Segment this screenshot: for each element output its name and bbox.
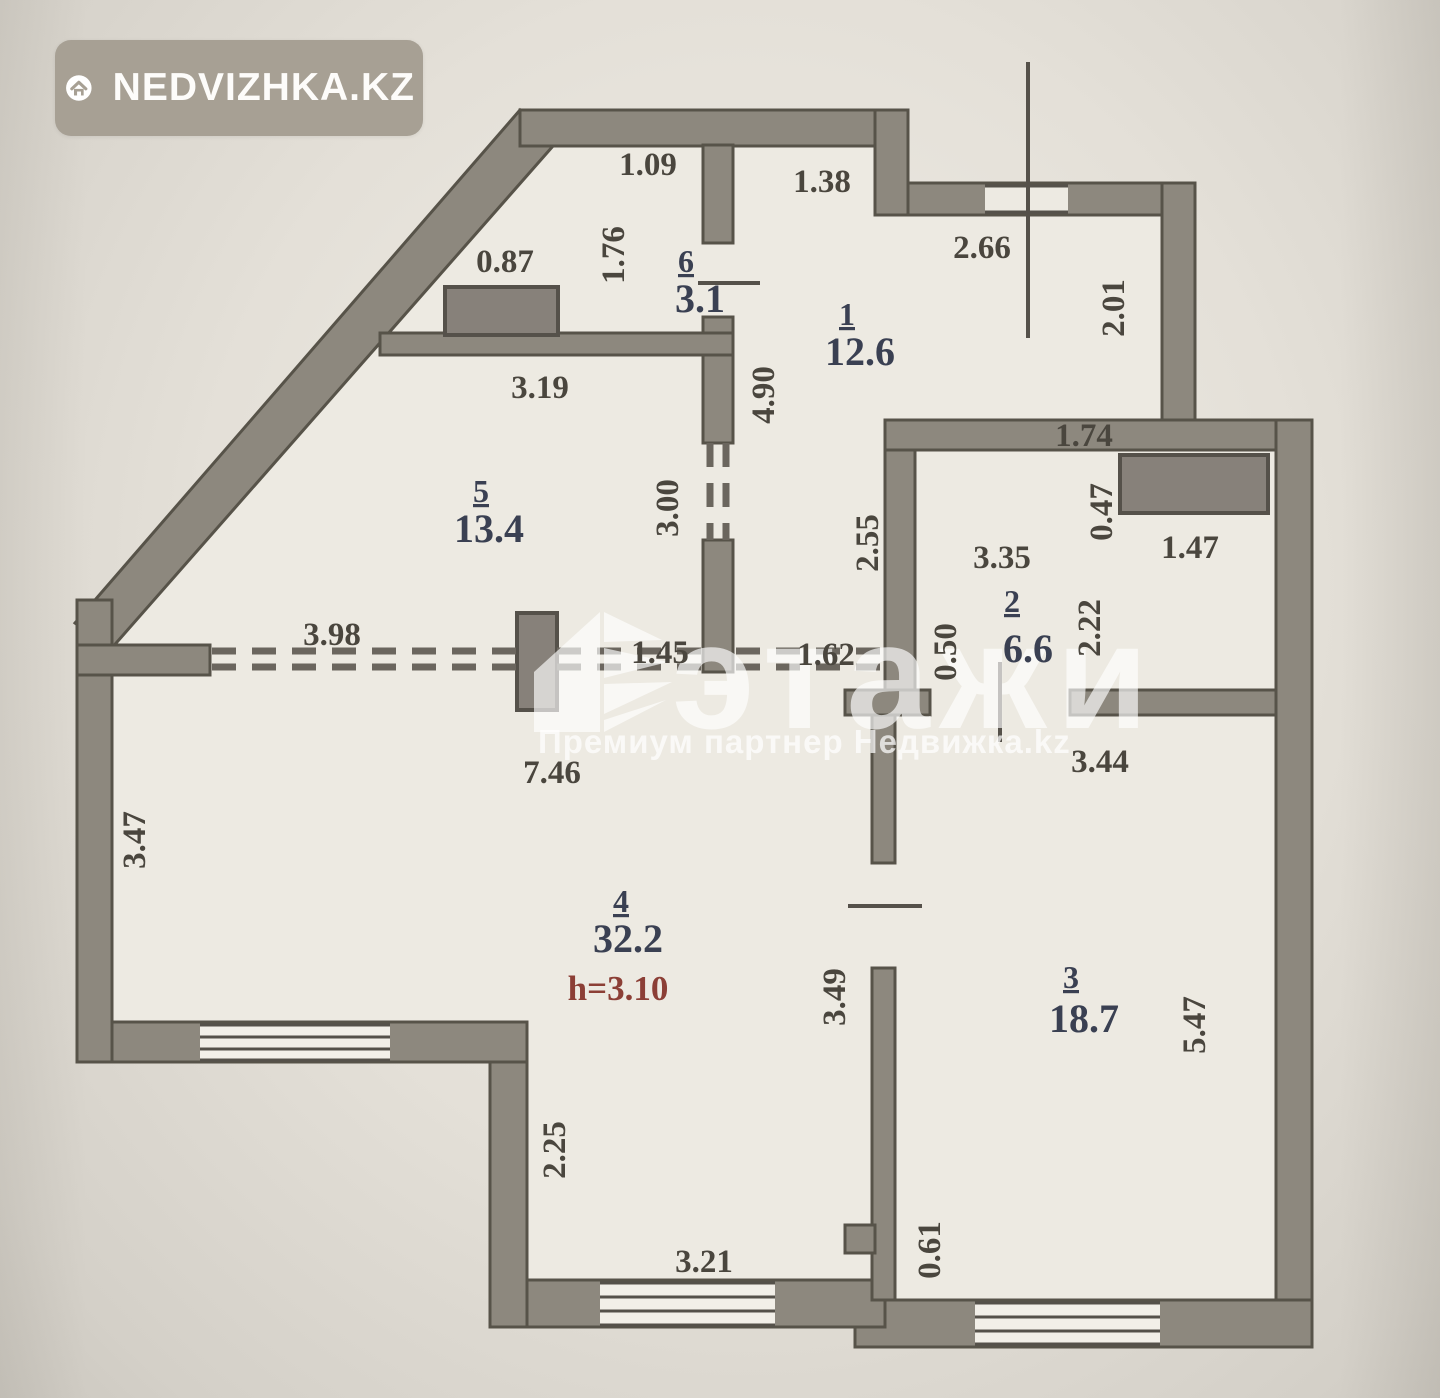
wall-right-lower — [1276, 420, 1312, 1347]
dim-label-32.2: 32.2 — [593, 916, 663, 961]
dim-label-3.21: 3.21 — [675, 1244, 733, 1280]
dim-label-2.25: 2.25 — [537, 1121, 573, 1179]
room-number-6: 6 — [678, 243, 694, 279]
dim-label-4.90: 4.90 — [746, 366, 782, 424]
dim-label-0.87: 0.87 — [476, 244, 534, 280]
dim-label-7.46: 7.46 — [523, 755, 581, 791]
dim-label-1.45: 1.45 — [631, 635, 689, 671]
dim-label-3.00: 3.00 — [650, 479, 686, 537]
vent-shaft-right — [1120, 455, 1268, 513]
dim-label-3.44: 3.44 — [1071, 744, 1129, 780]
dim-label-2.66: 2.66 — [953, 230, 1011, 266]
dim-label-3.1: 3.1 — [675, 276, 725, 321]
dim-label-1.74: 1.74 — [1055, 418, 1113, 454]
dim-label-h=3.10: h=3.10 — [568, 969, 669, 1008]
dim-label-12.6: 12.6 — [825, 329, 895, 374]
dim-label-1.38: 1.38 — [793, 164, 851, 200]
dim-label-1.47: 1.47 — [1161, 530, 1219, 566]
wall-bay-left — [490, 1030, 527, 1327]
dim-label-2.01: 2.01 — [1096, 279, 1132, 337]
dim-label-0.47: 0.47 — [1084, 483, 1120, 541]
dim-label-1.76: 1.76 — [596, 226, 632, 284]
wall-right-upper — [1162, 183, 1195, 433]
dim-label-2.22: 2.22 — [1072, 599, 1108, 657]
window-bottom-left — [200, 1024, 390, 1060]
dim-label-6.6: 6.6 — [1003, 626, 1053, 671]
dim-label-1.09: 1.09 — [619, 147, 677, 183]
wall-opening-stub — [77, 645, 210, 675]
wall-top-left — [520, 110, 908, 146]
room-number-3: 3 — [1063, 959, 1079, 995]
window-bottom-right — [975, 1302, 1160, 1345]
dim-label-3.49: 3.49 — [817, 968, 853, 1026]
dim-label-18.7: 18.7 — [1049, 996, 1119, 1041]
wall-hall-room6-a — [703, 145, 733, 243]
dim-label-0.50: 0.50 — [928, 623, 964, 681]
brand-name: NEDVIZHKA.KZ — [113, 66, 415, 110]
room-number-4: 4 — [613, 883, 629, 919]
window-bottom-middle — [600, 1282, 775, 1325]
dim-label-3.19: 3.19 — [511, 370, 569, 406]
dim-label-2.55: 2.55 — [850, 514, 886, 572]
dim-label-1.62: 1.62 — [797, 637, 855, 673]
room-number-5: 5 — [473, 473, 489, 509]
dim-label-0.61: 0.61 — [912, 1221, 948, 1279]
dim-label-5.47: 5.47 — [1177, 996, 1213, 1054]
wall-stub-061 — [845, 1225, 875, 1253]
floor-plan: этажи Премиум партнер Недвижка.kz 1.091.… — [0, 0, 1440, 1398]
brand-badge: NEDVIZHKA.KZ — [55, 40, 423, 136]
dim-label-3.98: 3.98 — [303, 617, 361, 653]
dim-label-3.35: 3.35 — [973, 540, 1031, 576]
dim-label-13.4: 13.4 — [454, 506, 524, 551]
room-number-1: 1 — [839, 296, 855, 332]
house-icon — [63, 52, 95, 124]
wall-top-step — [875, 110, 908, 215]
vent-shaft-left — [445, 287, 558, 335]
dim-label-3.47: 3.47 — [117, 811, 153, 869]
room-number-2: 2 — [1004, 583, 1020, 619]
watermark-subtitle: Премиум партнер Недвижка.kz — [538, 723, 1071, 760]
